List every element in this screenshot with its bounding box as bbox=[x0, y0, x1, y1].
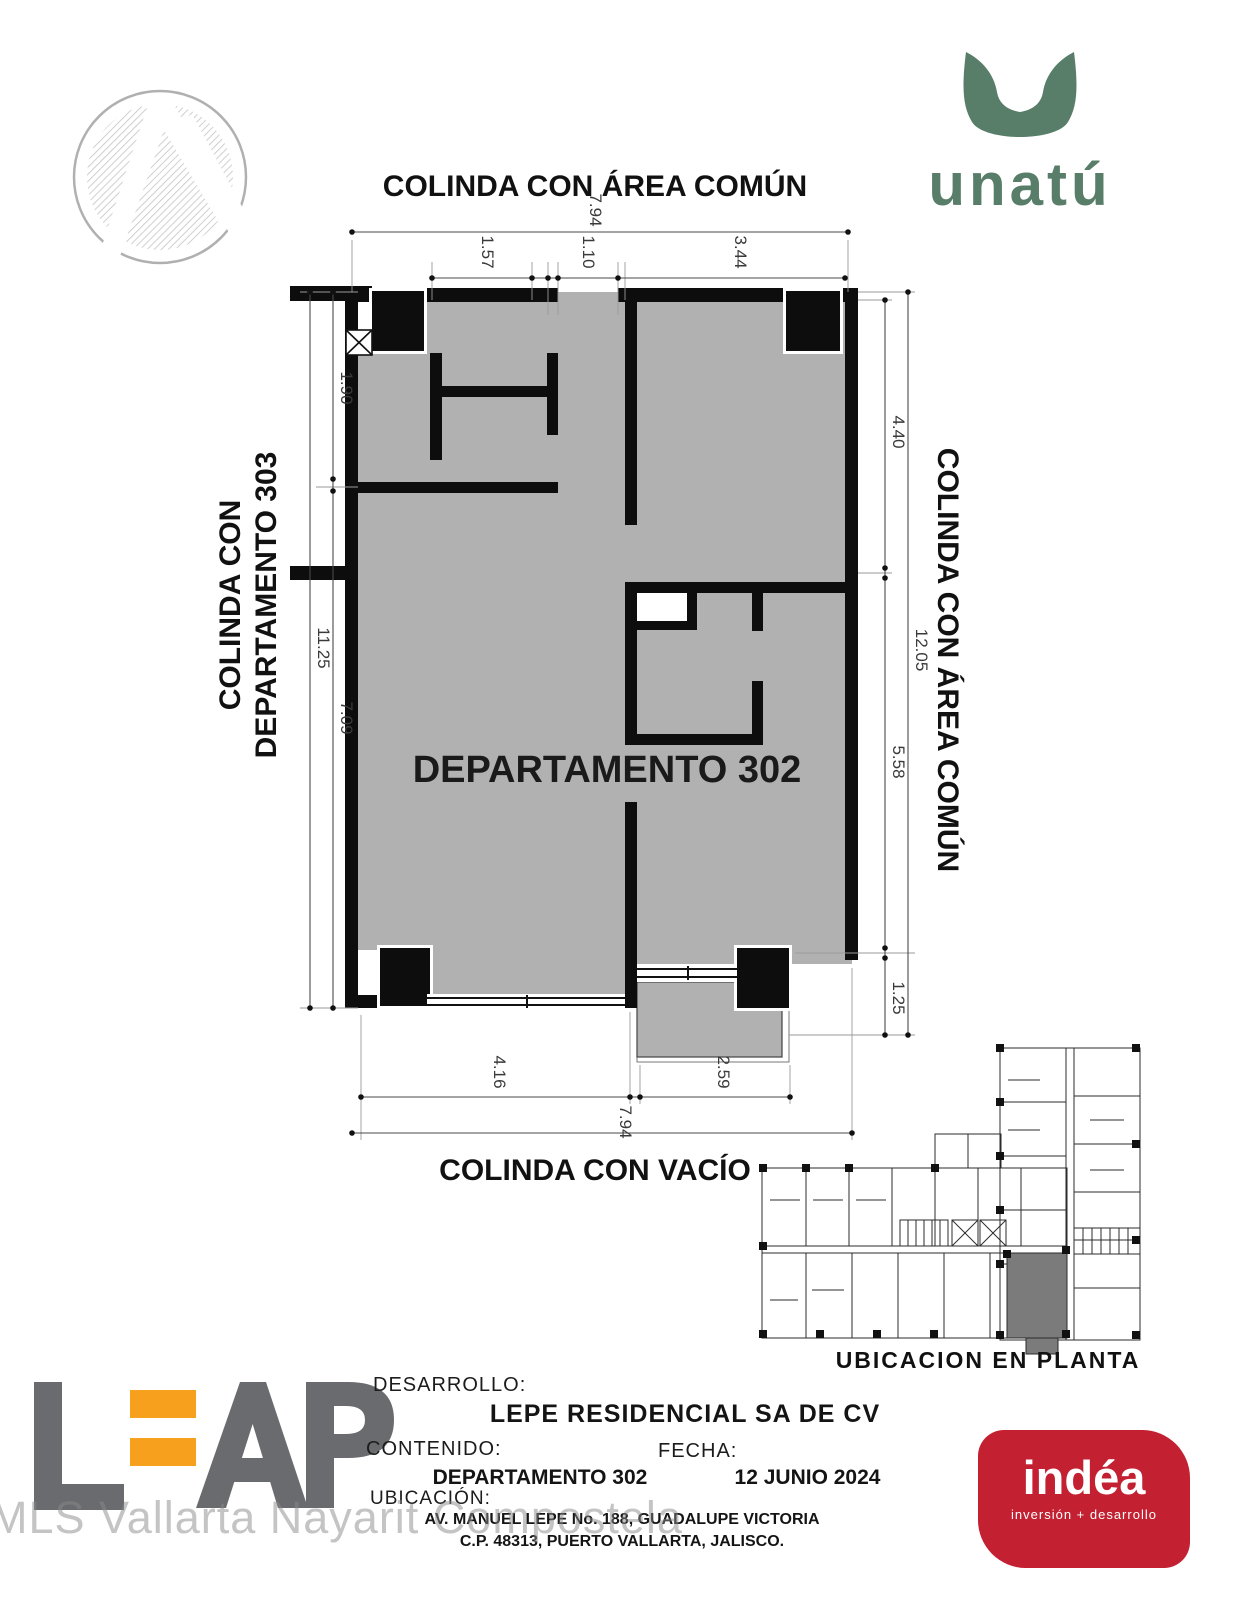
dim-left-total: 11.25 bbox=[314, 627, 333, 668]
leap-logo bbox=[34, 1382, 394, 1510]
shower-box bbox=[637, 593, 687, 621]
floorplan-sheet: unatú bbox=[0, 0, 1236, 1600]
fecha-label: FECHA: bbox=[658, 1440, 737, 1463]
site-plan-mini-map bbox=[759, 1044, 1140, 1354]
window-balcony bbox=[637, 964, 737, 982]
column-x-symbol-icon bbox=[346, 330, 372, 355]
desarrollo-value: LEPE RESIDENCIAL SA DE CV bbox=[470, 1400, 900, 1429]
indea-tagline: inversión + desarrollo bbox=[978, 1507, 1190, 1522]
dim-left-b: 7.09 bbox=[337, 701, 356, 734]
floor-plan: DEPARTAMENTO 302 bbox=[290, 286, 858, 1062]
dim-right-b: 5.58 bbox=[889, 745, 908, 778]
boundary-bottom-label: COLINDA CON VACÍO bbox=[439, 1153, 751, 1187]
unatu-symbol-icon bbox=[964, 52, 1077, 137]
contenido-label: CONTENIDO: bbox=[366, 1438, 502, 1461]
architect-circle-logo-icon bbox=[74, 91, 260, 263]
dim-top-a: 1.57 bbox=[478, 235, 497, 268]
wall-notch bbox=[358, 950, 378, 995]
boundary-right-label: COLINDA CON ÁREA COMÚN bbox=[931, 448, 965, 872]
boundary-left-label-line1: COLINDA CON bbox=[214, 500, 247, 711]
dim-bottom-b: 2.59 bbox=[714, 1055, 733, 1088]
indea-wordmark: indéa bbox=[978, 1454, 1190, 1501]
desarrollo-label: DESARROLLO: bbox=[373, 1374, 526, 1397]
leap-letter-e bbox=[130, 1390, 196, 1466]
contenido-value: DEPARTAMENTO 302 bbox=[420, 1466, 660, 1490]
highlighted-unit bbox=[1007, 1253, 1067, 1354]
dim-top-c: 3.44 bbox=[731, 235, 750, 268]
leap-letter-l bbox=[34, 1382, 124, 1510]
floor-area bbox=[352, 292, 852, 1008]
indea-logo: indéa inversión + desarrollo bbox=[978, 1430, 1190, 1568]
dim-left-a: 1.90 bbox=[337, 371, 356, 404]
dim-top-b: 1.10 bbox=[579, 235, 598, 268]
unit-label: DEPARTAMENTO 302 bbox=[413, 749, 802, 791]
watermark-text: MLS Vallarta Nayarit Compostela bbox=[0, 1492, 683, 1544]
dim-right-a: 4.40 bbox=[889, 415, 908, 448]
unatu-logo: unatú bbox=[928, 52, 1111, 218]
fecha-value: 12 JUNIO 2024 bbox=[700, 1466, 915, 1490]
boundary-top-label: COLINDA CON ÁREA COMÚN bbox=[383, 169, 807, 203]
dim-right-c: 1.25 bbox=[889, 981, 908, 1014]
dim-right-total: 12.05 bbox=[912, 629, 931, 672]
dim-bottom-a: 4.16 bbox=[490, 1055, 509, 1088]
unatu-wordmark: unatú bbox=[928, 151, 1111, 218]
dim-bottom-total: 7.94 bbox=[616, 1105, 635, 1138]
window-bottom-left bbox=[427, 994, 625, 1008]
leap-letter-a bbox=[196, 1382, 308, 1508]
boundary-left-label-line2: DEPARTAMENTO 303 bbox=[250, 452, 283, 759]
site-plan-caption: UBICACION EN PLANTA bbox=[836, 1347, 1141, 1373]
